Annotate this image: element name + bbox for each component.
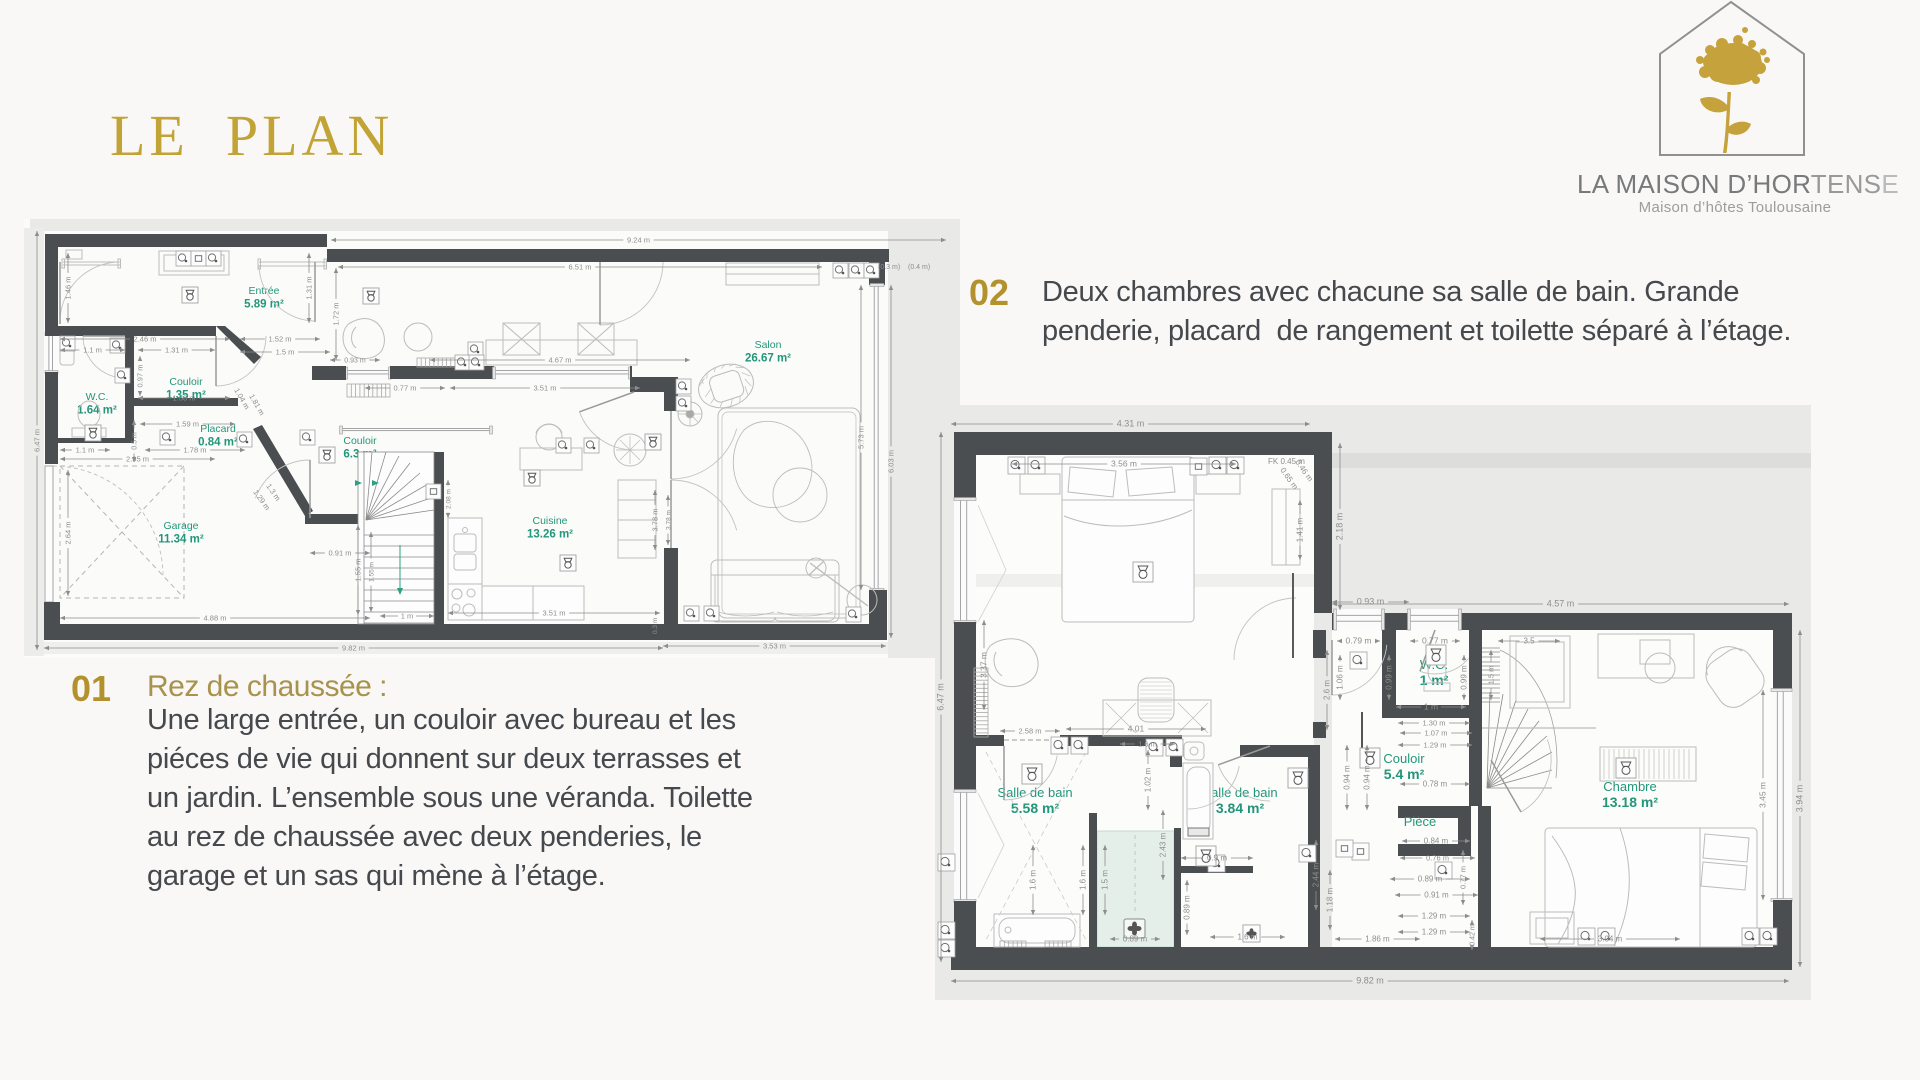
svg-text:9.24 m: 9.24 m [627, 236, 650, 245]
svg-text:0.77 m: 0.77 m [1459, 866, 1468, 889]
svg-text:0.89 m: 0.89 m [1183, 895, 1192, 920]
svg-text:0.99 m: 0.99 m [1385, 665, 1394, 690]
svg-text:1.1 m: 1.1 m [76, 446, 95, 455]
svg-text:1.6 m: 1.6 m [1029, 870, 1038, 890]
svg-text:3.51 m: 3.51 m [534, 384, 557, 393]
svg-text:0.93 m: 0.93 m [1357, 597, 1385, 607]
svg-text:1.55 m: 1.55 m [354, 559, 363, 582]
svg-text:2.18 m: 2.18 m [1335, 513, 1345, 541]
svg-text:Couloir: Couloir [169, 376, 203, 388]
svg-text:9.82 m: 9.82 m [342, 644, 365, 653]
svg-text:1.02 m: 1.02 m [1144, 767, 1153, 792]
svg-text:3.45 m: 3.45 m [1758, 782, 1768, 808]
svg-text:FK 0.45 m: FK 0.45 m [1268, 457, 1305, 466]
svg-text:0.3 m: 0.3 m [652, 618, 659, 634]
svg-text:1.6 m: 1.6 m [1237, 933, 1257, 942]
svg-text:0.94 m: 0.94 m [1363, 765, 1372, 790]
svg-text:Maison d’hôtes Toulousaine: Maison d’hôtes Toulousaine [1639, 199, 1832, 216]
svg-text:2.08 m: 2.08 m [446, 489, 453, 509]
svg-text:1.72 m: 1.72 m [332, 303, 341, 326]
svg-text:1.29 m: 1.29 m [1422, 912, 1447, 921]
svg-text:(0.4 m): (0.4 m) [908, 264, 930, 271]
svg-text:2.46 m: 2.46 m [134, 335, 157, 344]
svg-text:0.78 m: 0.78 m [1423, 780, 1448, 789]
svg-text:9.82 m: 9.82 m [1356, 976, 1384, 986]
svg-text:5.58 m²: 5.58 m² [1011, 800, 1060, 816]
svg-text:1.5 m: 1.5 m [276, 348, 295, 357]
svg-text:LA MAISON D’HORTENSE: LA MAISON D’HORTENSE [1577, 169, 1899, 199]
svg-text:Garage: Garage [163, 520, 198, 532]
svg-text:1.58 m: 1.58 m [173, 394, 196, 403]
svg-text:1.52 m: 1.52 m [269, 335, 292, 344]
svg-text:1.41 m: 1.41 m [1296, 517, 1305, 542]
svg-text:0.77 m: 0.77 m [394, 384, 417, 393]
svg-text:1.64 m²: 1.64 m² [77, 405, 117, 417]
svg-text:0.89 m: 0.89 m [1123, 935, 1148, 944]
svg-text:3.5: 3.5 [1523, 637, 1535, 646]
svg-text:0.91 m: 0.91 m [1424, 891, 1449, 900]
svg-text:6.03 m: 6.03 m [887, 450, 896, 473]
svg-text:3.78 m: 3.78 m [651, 509, 660, 532]
svg-text:1 m: 1 m [1424, 702, 1438, 712]
svg-text:3.53 m: 3.53 m [763, 642, 786, 651]
svg-text:1.31 m: 1.31 m [165, 346, 188, 355]
svg-text:1.55 m: 1.55 m [369, 562, 376, 582]
svg-text:Salon: Salon [755, 339, 782, 351]
svg-text:26.67 m²: 26.67 m² [745, 353, 791, 365]
svg-text:(0.3 m): (0.3 m) [878, 264, 900, 271]
svg-text:1.31 m: 1.31 m [305, 277, 314, 300]
svg-text:5.89 m²: 5.89 m² [244, 299, 284, 311]
svg-text:1.06 m: 1.06 m [1336, 665, 1345, 690]
svg-text:3.51 m: 3.51 m [543, 609, 566, 618]
svg-text:2.64 m: 2.64 m [64, 522, 73, 545]
svg-text:2.6 m: 2.6 m [1323, 680, 1332, 700]
svg-text:0.5 m: 0.5 m [132, 432, 139, 450]
svg-text:0.9 m: 0.9 m [1207, 854, 1227, 863]
svg-text:0.79 m: 0.79 m [1346, 636, 1372, 646]
svg-text:0.84 m: 0.84 m [1424, 837, 1449, 846]
svg-text:5.4 m²: 5.4 m² [1384, 766, 1425, 782]
svg-text:13.26 m²: 13.26 m² [527, 529, 573, 541]
svg-text:1.1 m: 1.1 m [83, 346, 102, 355]
svg-text:2.58 m: 2.58 m [1019, 727, 1042, 736]
svg-text:6.51 m: 6.51 m [569, 263, 592, 272]
svg-text:6.47 m: 6.47 m [33, 429, 42, 452]
svg-text:13.18 m²: 13.18 m² [1602, 794, 1658, 810]
svg-text:4.01: 4.01 [1128, 724, 1145, 734]
svg-text:5.73 m: 5.73 m [857, 426, 866, 449]
svg-text:1.78 m: 1.78 m [184, 446, 207, 455]
svg-text:3.84 m²: 3.84 m² [1216, 800, 1265, 816]
svg-text:3.56 m: 3.56 m [1111, 459, 1137, 469]
svg-text:1.6 m: 1.6 m [1138, 740, 1157, 749]
svg-text:3.78 m: 3.78 m [666, 510, 673, 530]
svg-text:1.59 m: 1.59 m [176, 420, 199, 429]
svg-text:0.99 m: 0.99 m [1460, 665, 1469, 690]
svg-text:1.6 m: 1.6 m [1079, 870, 1088, 890]
svg-text:3.37 m: 3.37 m [979, 652, 989, 678]
svg-text:1.07 m: 1.07 m [1425, 729, 1448, 738]
svg-text:Cuisine: Cuisine [532, 515, 567, 527]
svg-text:11.34 m²: 11.34 m² [158, 534, 204, 546]
svg-text:6.47 m: 6.47 m [936, 683, 946, 711]
svg-text:0.91 m: 0.91 m [329, 549, 352, 558]
svg-text:1.29 m: 1.29 m [1424, 741, 1447, 750]
svg-text:3.04 m: 3.04 m [1598, 935, 1623, 944]
svg-text:Couloir: Couloir [343, 435, 377, 447]
svg-text:1.29 m: 1.29 m [1422, 928, 1447, 937]
svg-text:4.31 m: 4.31 m [1117, 419, 1145, 429]
svg-text:1.5 m: 1.5 m [1101, 870, 1110, 890]
svg-text:0.76 m: 0.76 m [1426, 854, 1449, 863]
svg-text:Salle de bain: Salle de bain [997, 785, 1072, 800]
svg-text:Pièce: Pièce [1404, 814, 1437, 829]
svg-text:0.93 m: 0.93 m [344, 358, 366, 365]
svg-text:2.43 m: 2.43 m [1159, 832, 1168, 857]
svg-text:2.44 m: 2.44 m [1312, 862, 1321, 887]
svg-text:3.94 m: 3.94 m [1795, 785, 1805, 813]
svg-text:1.86 m: 1.86 m [1365, 935, 1390, 944]
svg-text:1.18 m: 1.18 m [1326, 887, 1335, 912]
svg-text:0.94 m: 0.94 m [1343, 765, 1352, 790]
svg-text:4.88 m: 4.88 m [204, 614, 227, 623]
svg-text:1.5 m: 1.5 m [1487, 666, 1496, 685]
svg-text:0.97 m: 0.97 m [136, 365, 145, 388]
svg-text:1.30 m: 1.30 m [1423, 719, 1446, 728]
svg-text:0.89 m: 0.89 m [1418, 875, 1443, 884]
svg-text:0.77 m: 0.77 m [1422, 636, 1448, 646]
svg-text:1 m: 1 m [401, 612, 414, 621]
svg-text:0.42 m: 0.42 m [1470, 924, 1477, 946]
svg-text:4.57 m: 4.57 m [1547, 599, 1575, 609]
svg-text:4.67 m: 4.67 m [549, 356, 572, 365]
svg-text:Couloir: Couloir [1383, 751, 1425, 766]
svg-text:2.95 m: 2.95 m [126, 455, 149, 464]
svg-text:Entrée: Entrée [249, 285, 280, 297]
svg-text:1.46 m: 1.46 m [64, 277, 73, 300]
